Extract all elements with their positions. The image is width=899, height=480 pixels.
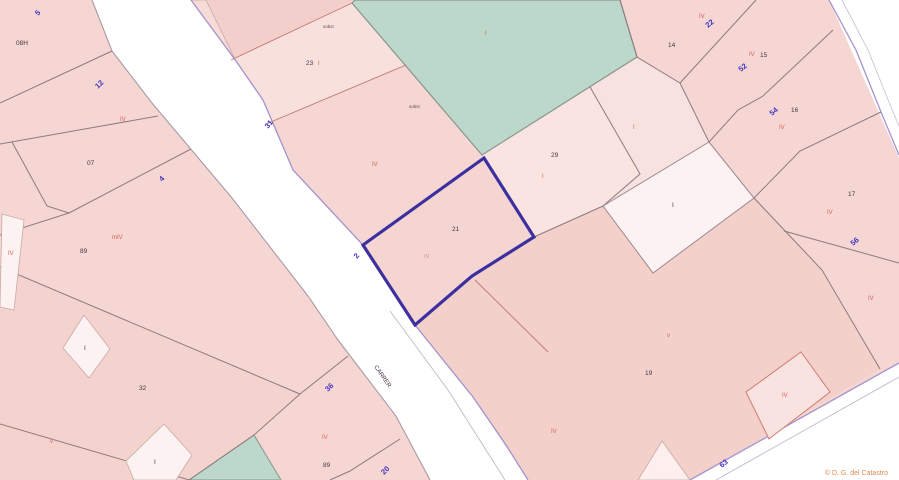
svg-text:IV: IV (779, 125, 785, 131)
svg-text:IV: IV (868, 296, 874, 302)
svg-text:mIV: mIV (112, 235, 123, 241)
svg-text:sobst: sobst (409, 104, 421, 109)
svg-text:IV: IV (322, 435, 328, 441)
svg-text:32: 32 (139, 385, 147, 392)
svg-text:21: 21 (452, 226, 460, 233)
svg-text:I: I (672, 202, 674, 209)
svg-text:IV: IV (551, 429, 557, 435)
svg-text:19: 19 (645, 370, 653, 377)
svg-text:14: 14 (668, 42, 676, 49)
svg-text:IV: IV (372, 162, 378, 168)
svg-text:IV: IV (699, 14, 705, 20)
svg-text:© D. G. del Catastro: © D. G. del Catastro (825, 469, 888, 477)
svg-text:23: 23 (306, 60, 314, 67)
svg-text:07: 07 (87, 160, 95, 167)
svg-text:IV: IV (120, 117, 126, 123)
svg-text:I: I (84, 345, 86, 352)
svg-text:IV: IV (782, 393, 788, 399)
svg-text:IV: IV (749, 52, 755, 58)
svg-text:v: v (667, 333, 670, 339)
svg-text:I: I (154, 459, 156, 466)
svg-text:sobst: sobst (323, 24, 335, 29)
svg-text:89: 89 (323, 462, 331, 469)
svg-text:v: v (50, 439, 53, 445)
svg-text:89: 89 (80, 248, 88, 255)
svg-text:17: 17 (848, 191, 856, 198)
svg-text:29: 29 (551, 152, 559, 159)
svg-text:IV: IV (424, 254, 430, 260)
svg-text:IV: IV (8, 251, 14, 257)
svg-text:15: 15 (760, 52, 768, 59)
svg-text:08H: 08H (16, 40, 28, 47)
svg-text:IV: IV (827, 210, 833, 216)
svg-text:16: 16 (791, 107, 799, 114)
